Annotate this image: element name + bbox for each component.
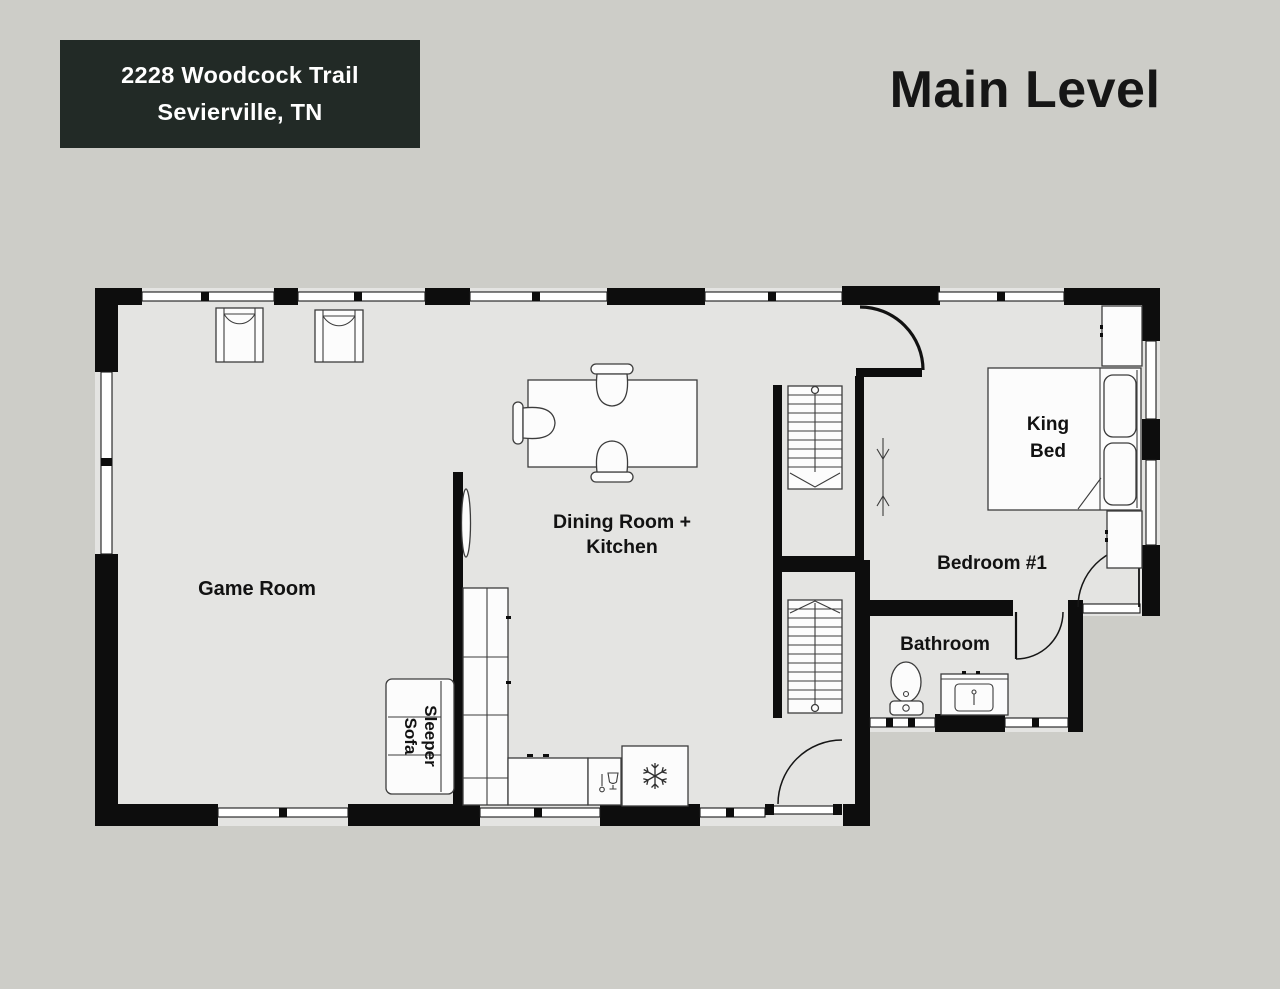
refrigerator <box>622 746 688 806</box>
pillow <box>1104 443 1136 505</box>
stove <box>588 758 621 805</box>
wall-tv <box>462 489 471 557</box>
pillow <box>1104 375 1136 437</box>
staircase-lower <box>788 600 842 713</box>
staircase-upper <box>788 386 842 489</box>
armchair-1 <box>216 308 263 362</box>
bedroom-label: Bedroom #1 <box>937 553 1047 574</box>
sleeper-sofa-label-line1: Sleeper <box>421 705 440 767</box>
dining-room-label-line1: Dining Room + <box>553 511 691 533</box>
nightstand-bottom <box>1105 511 1142 568</box>
game-room-label: Game Room <box>198 578 316 600</box>
nightstand-top <box>1100 306 1142 366</box>
bathroom-label: Bathroom <box>900 634 990 655</box>
toilet <box>890 662 923 715</box>
floor-plan: Sleeper Sofa <box>0 0 1280 989</box>
armchair-2 <box>315 310 363 362</box>
sleeper-sofa-label-line2: Sofa <box>401 718 420 755</box>
king-bed-label-line1: King <box>1027 414 1069 435</box>
king-bed-label-line2: Bed <box>1030 441 1066 462</box>
vanity-sink <box>941 671 1008 715</box>
dining-room-label-line2: Kitchen <box>586 536 658 558</box>
king-bed: King Bed <box>988 368 1141 510</box>
sleeper-sofa: Sleeper Sofa <box>386 679 454 794</box>
